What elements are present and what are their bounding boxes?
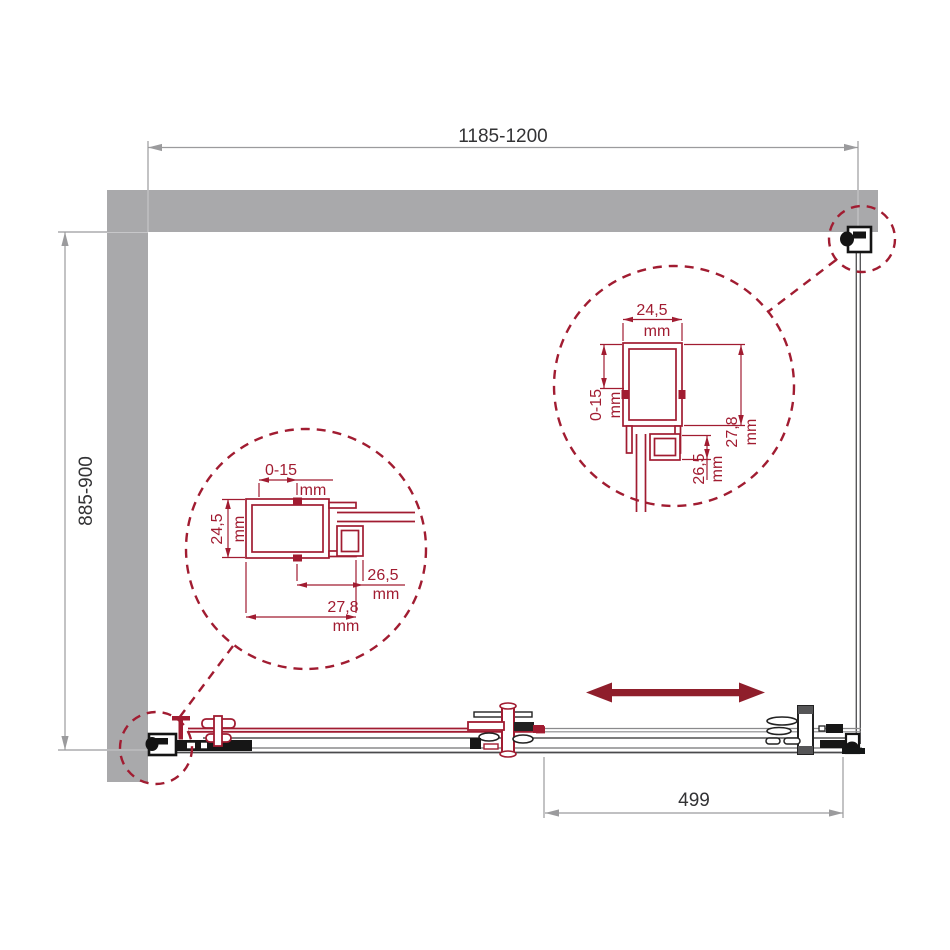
slide-direction-arrow-icon bbox=[586, 683, 765, 703]
detail-left-adjustment-unit: mm bbox=[300, 482, 327, 499]
callout-leader-right bbox=[769, 260, 836, 311]
detail-left-width-value: 27,8 bbox=[327, 599, 358, 616]
shower-enclosure-plan-drawing: 1185-1200 885-900 bbox=[0, 0, 950, 950]
detail-left-channel-value: 26,5 bbox=[367, 567, 398, 584]
technical-drawing-canvas: 1185-1200 885-900 bbox=[0, 0, 950, 950]
detail-left-height-unit: mm bbox=[231, 516, 248, 543]
door-width-label: 499 bbox=[678, 790, 710, 811]
detail-left-height-value: 24,5 bbox=[209, 513, 226, 544]
wall-profile-cross-section bbox=[246, 498, 415, 562]
detail-right-channel-unit: mm bbox=[709, 456, 726, 483]
detail-callouts bbox=[120, 206, 895, 784]
overall-width-label: 1185-1200 bbox=[458, 126, 547, 147]
overall-depth-label: 885-900 bbox=[76, 456, 97, 526]
wall-profile-fitting-bottom bbox=[146, 716, 253, 755]
wall-top bbox=[107, 190, 878, 232]
roller-carriage-middle bbox=[468, 703, 544, 757]
side-glass-panel bbox=[856, 252, 860, 744]
detail-left-width-unit: mm bbox=[333, 618, 360, 635]
dimension-door-width: 499 bbox=[544, 757, 843, 818]
detail-right-height-unit: mm bbox=[743, 419, 760, 446]
wall-profile-cross-section-vertical bbox=[622, 343, 686, 512]
callout-leader-left bbox=[179, 646, 233, 718]
detail-left-adjustment-value: 0-15 bbox=[265, 462, 297, 479]
detail-right-width-value: 24,5 bbox=[636, 302, 667, 319]
corner-fitting-bottom-right bbox=[820, 734, 865, 754]
detail-left-channel-unit: mm bbox=[373, 586, 400, 603]
detail-right-width-unit: mm bbox=[644, 323, 671, 340]
detail-right-adjustment-value: 0-15 bbox=[588, 389, 605, 421]
wall-left bbox=[107, 190, 148, 782]
detail-right-adjustment-unit: mm bbox=[607, 392, 624, 419]
detail-right-channel-value: 26,5 bbox=[691, 453, 708, 484]
detail-right-height-value: 27,8 bbox=[724, 416, 741, 447]
